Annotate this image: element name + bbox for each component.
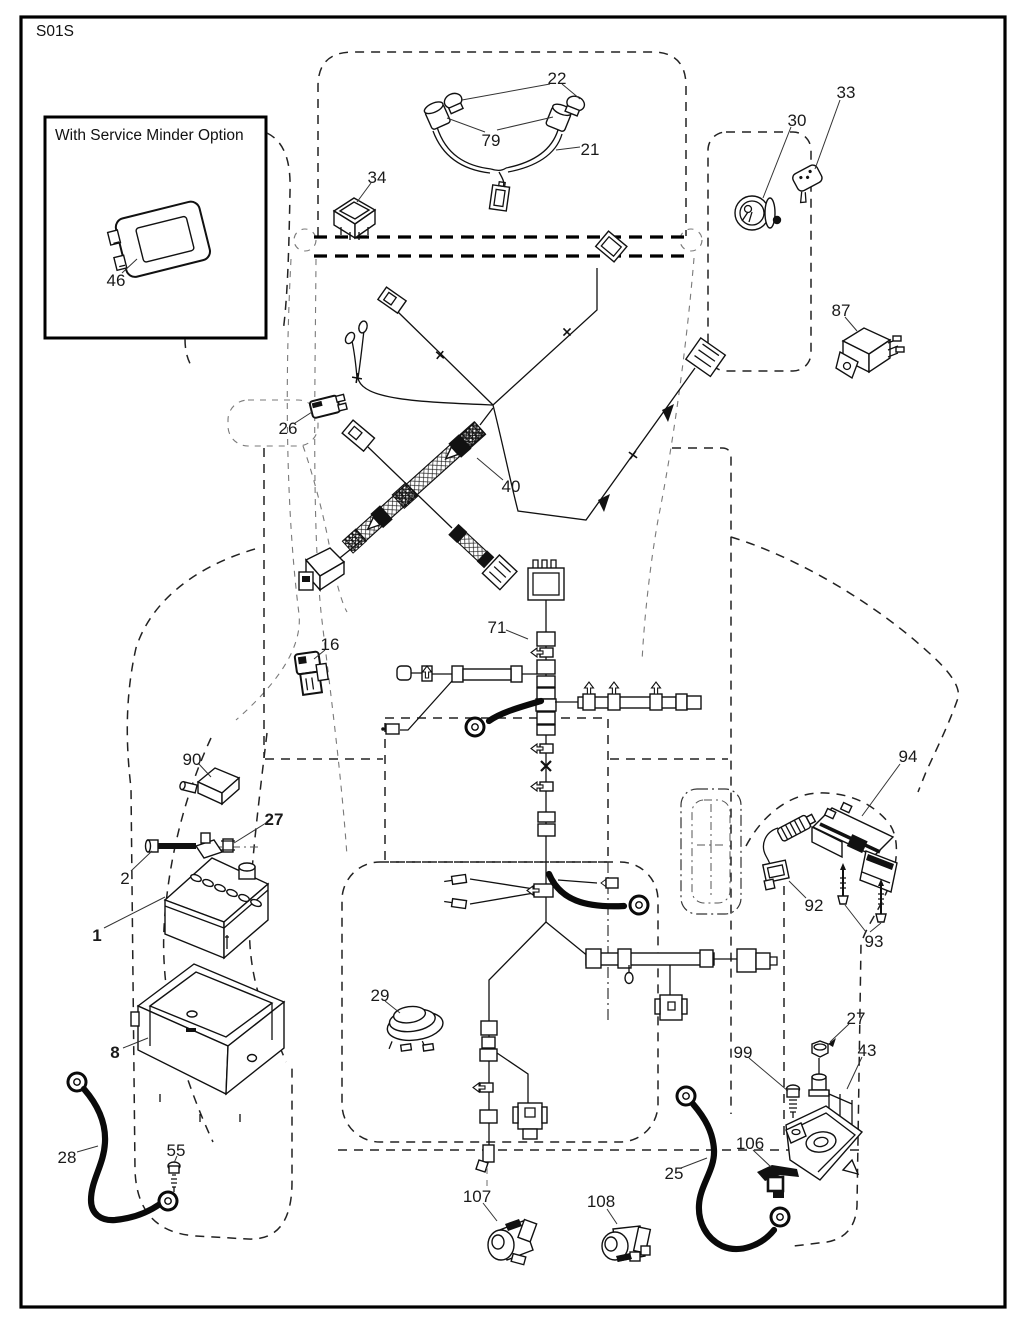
part-label-79: 79 [482,131,501,150]
part-label-30: 30 [788,111,807,130]
part-label-71: 71 [488,618,507,637]
part-label-16: 16 [321,635,340,654]
part-label-29: 29 [371,986,390,1005]
parts-diagram-page: S01S With Service Minder Option [0,0,1024,1327]
part-label-28: 28 [58,1148,77,1167]
part-label-87: 87 [832,301,851,320]
part-label-40: 40 [502,477,521,496]
part-label-33: 33 [837,83,856,102]
part-label-107: 107 [463,1187,491,1206]
part-label-8: 8 [110,1043,119,1062]
service-minder-inset: With Service Minder Option [45,117,290,369]
part-label-90: 90 [183,750,202,769]
part-label-34: 34 [368,168,387,187]
part-label-93: 93 [865,932,884,951]
part-label-108: 108 [587,1192,615,1211]
part-label-26: 26 [279,419,298,438]
part-label-106: 106 [736,1134,764,1153]
part-label-25: 25 [665,1164,684,1183]
inset-title: With Service Minder Option [55,127,244,144]
relay-socket [655,995,687,1020]
page-code: S01S [36,23,74,40]
wiring-diagram-svg: S01S With Service Minder Option [0,0,1024,1327]
part-label-27a: 27 [265,810,284,829]
part-label-22: 22 [548,69,567,88]
part-label-99: 99 [734,1043,753,1062]
part-label-55: 55 [167,1141,186,1160]
part-27-nut-top [221,839,235,852]
part-label-1: 1 [92,926,101,945]
part-label-46: 46 [107,271,126,290]
part-label-94: 94 [899,747,918,766]
part-label-43: 43 [858,1041,877,1060]
part-label-2: 2 [120,869,129,888]
part-label-21: 21 [581,140,600,159]
part-label-27b: 27 [847,1009,866,1028]
part-27-nut-bottom [812,1041,828,1057]
part-label-92: 92 [805,896,824,915]
